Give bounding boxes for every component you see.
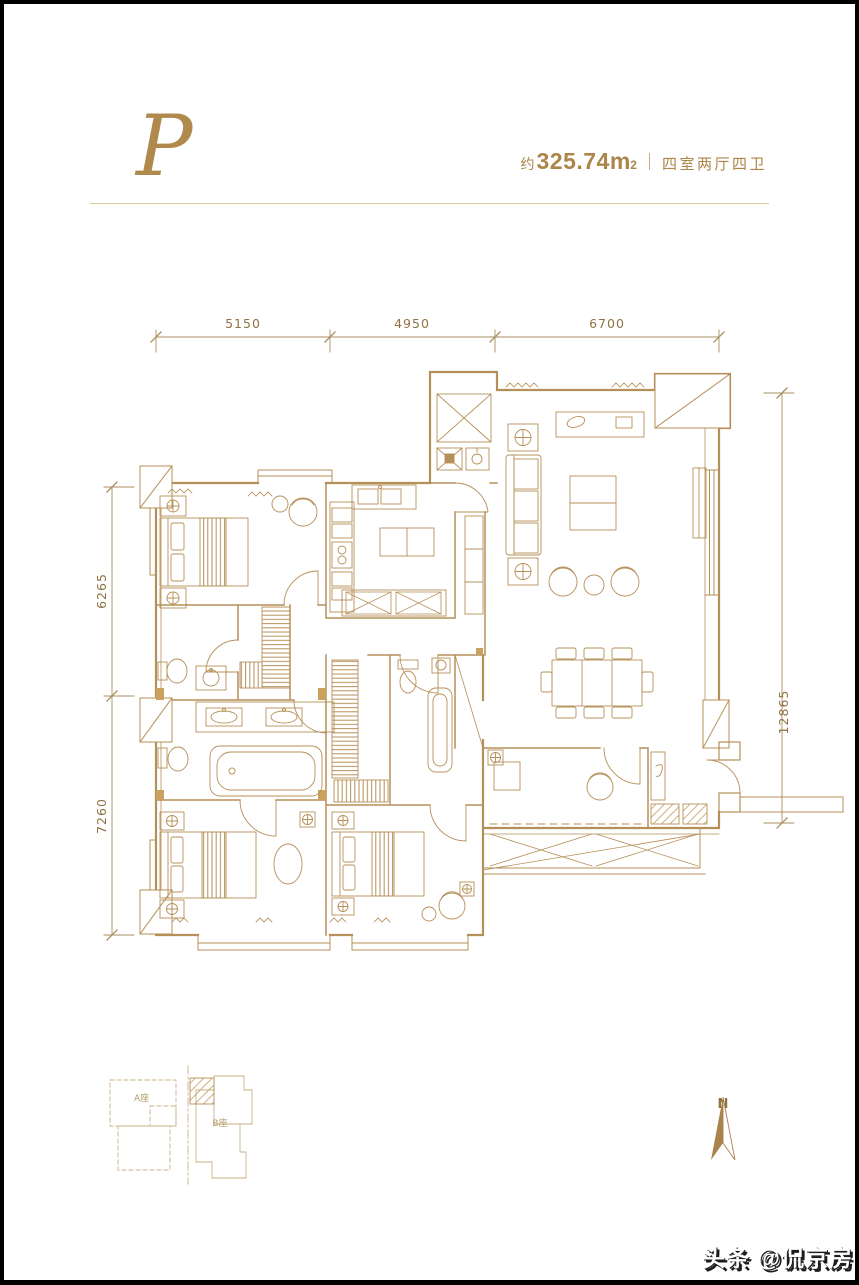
watermark: 头条 @侃京房 <box>702 1239 853 1273</box>
dim-top-1: 5150 <box>225 316 261 331</box>
kitchen <box>330 485 446 616</box>
dim-left-1: 6265 <box>94 573 109 609</box>
dressing-room-closet <box>240 607 290 688</box>
hallway-cabinet <box>465 516 483 614</box>
elevator-shaft <box>437 394 491 470</box>
key-plan-unit-highlight <box>190 1078 214 1104</box>
walk-in-closet <box>332 660 388 802</box>
dimension-left: 6265 7260 <box>94 482 134 940</box>
interior-walls <box>156 483 648 935</box>
dimension-top: 5150 4950 6700 <box>151 316 724 352</box>
dim-top-3: 6700 <box>589 316 625 331</box>
study-room <box>488 750 645 824</box>
foyer <box>651 752 707 824</box>
master-bathroom <box>158 702 334 796</box>
key-plan-label-b: B座 <box>212 1117 227 1129</box>
bedroom-1 <box>160 489 317 608</box>
entry-door <box>707 742 843 812</box>
compass-north: N <box>711 1097 735 1160</box>
dimension-right: 12865 <box>764 388 794 828</box>
dim-top-2: 4950 <box>394 316 430 331</box>
dim-left-2: 7260 <box>94 798 109 834</box>
balcony <box>483 828 705 874</box>
floorplan-page: P 约325.74m2 四室两厅四卫 5150 4950 6700 <box>0 0 859 1285</box>
bedroom-3 <box>330 812 474 922</box>
structural-columns <box>140 374 730 934</box>
dining-room <box>541 648 653 718</box>
north-needle-outline <box>723 1097 735 1160</box>
key-plan-label-a: A座 <box>134 1092 149 1104</box>
dim-right-1: 12865 <box>776 690 791 735</box>
floor-plan-canvas: 5150 4950 6700 6265 7260 12865 <box>0 0 859 1285</box>
bathroom-1 <box>158 659 226 690</box>
wall-fills <box>156 648 483 800</box>
windows <box>150 470 719 950</box>
bathroom-2 <box>398 655 483 772</box>
key-plan: A座 B座 <box>110 1066 252 1184</box>
bedroom-2 <box>160 812 315 922</box>
exterior-walls <box>156 372 730 935</box>
